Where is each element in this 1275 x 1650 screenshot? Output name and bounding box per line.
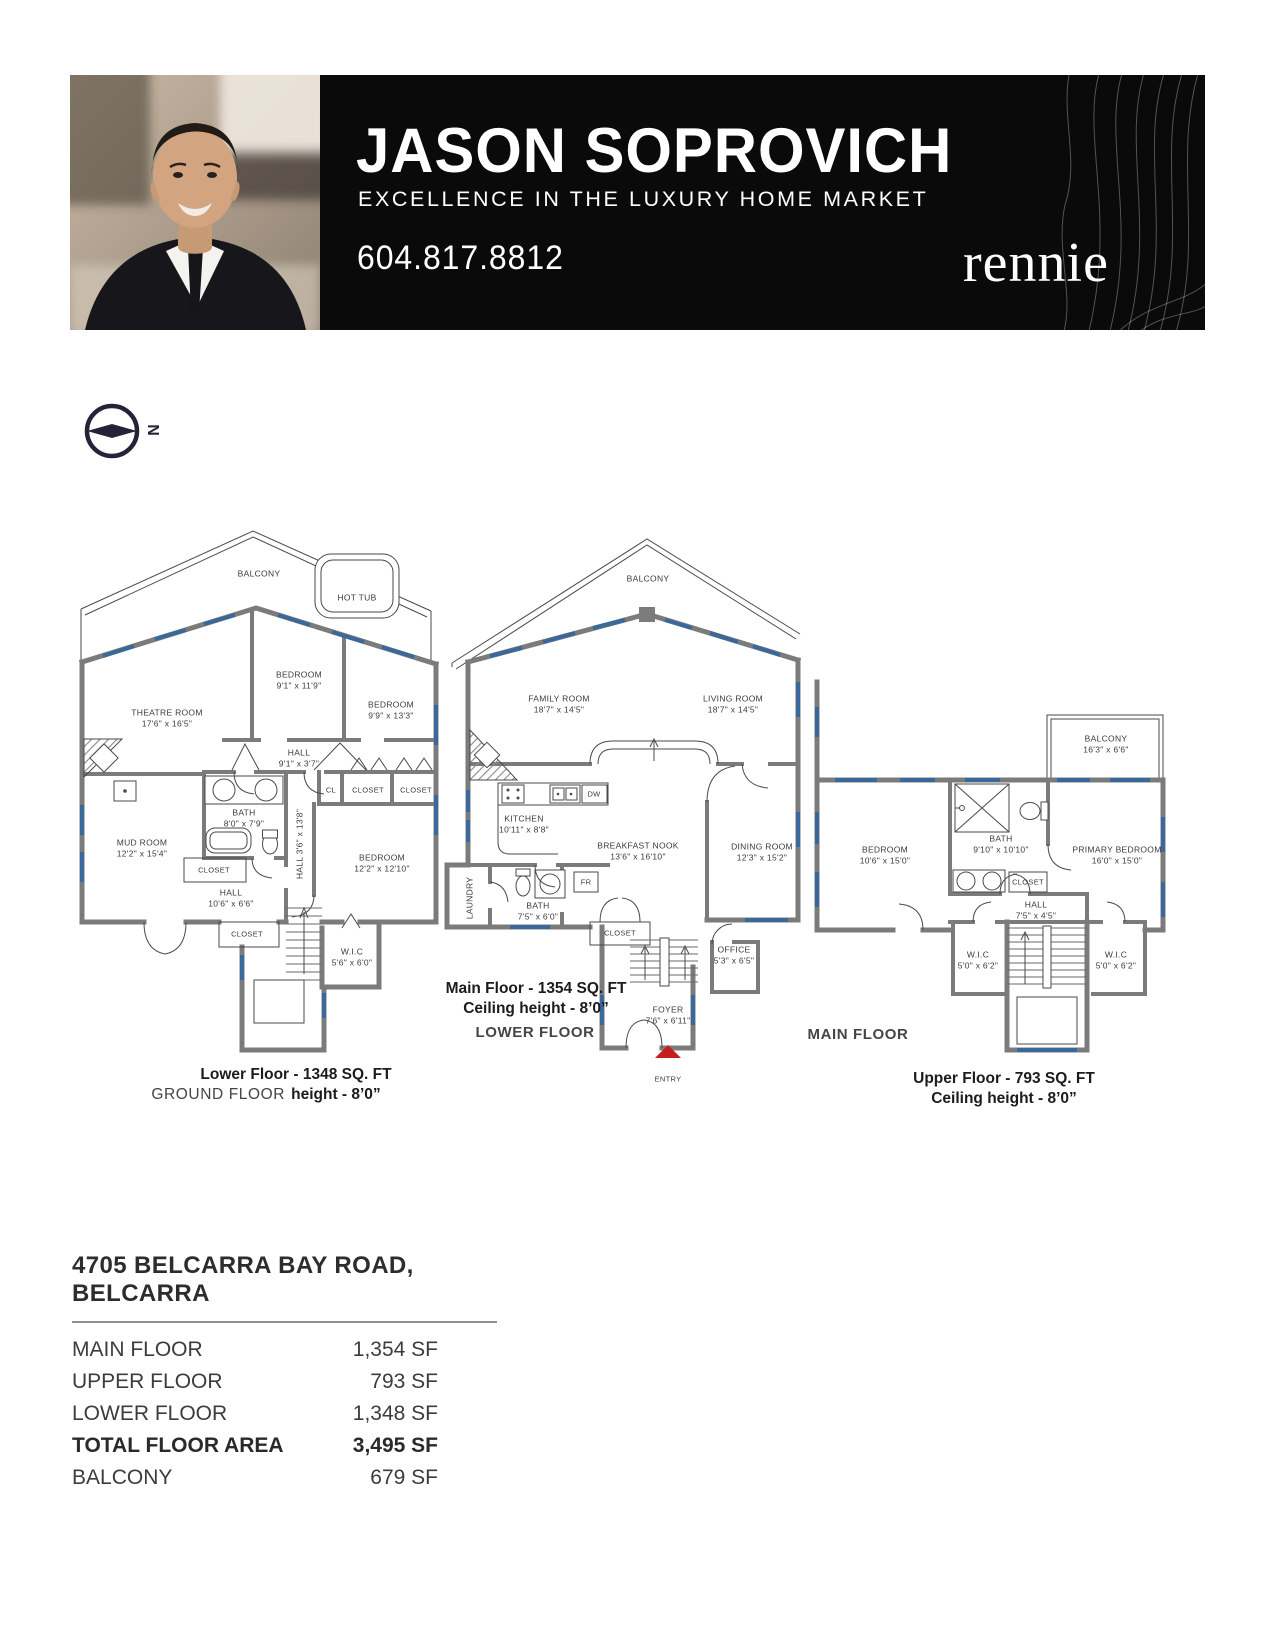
room-label-closet: CLOSET xyxy=(1012,877,1044,886)
main-floor-caption-title: Main Floor - 1354 SQ. FT xyxy=(446,980,627,998)
room-label-office: OFFICE5'3" x 6'5" xyxy=(714,944,754,965)
compass-needle xyxy=(87,424,137,438)
upper-floor-caption-title: Upper Floor - 793 SQ. FT xyxy=(913,1070,1095,1088)
room-label-living: LIVING ROOM18'7" x 14'5" xyxy=(703,693,763,714)
room-label-bedroom: BEDROOM12'2" x 12'10" xyxy=(354,852,410,873)
contour-lines-decoration xyxy=(865,75,1205,330)
room-label-closet: CLOSET xyxy=(352,785,384,794)
upper-floor-plan: BALCONY16'3" x 6'6" BEDROOM10'6" x 15'0"… xyxy=(805,672,1167,1072)
room-label-hall-vertical: HALL 3'6" x 13'8" xyxy=(295,809,306,879)
room-label-closet: CLOSET xyxy=(231,929,263,938)
balcony-outline xyxy=(81,531,431,662)
page: JASON SOPROVICH EXCELLENCE IN THE LUXURY… xyxy=(0,0,1275,1650)
room-label-dining: DINING ROOM12'3" x 15'2" xyxy=(731,841,793,862)
room-label-bath: BATH7'5" x 6'0" xyxy=(518,900,558,921)
room-label-hall: HALL7'5" x 4'5" xyxy=(1016,899,1056,920)
toilet xyxy=(516,876,530,896)
lower-floor-drawing xyxy=(74,510,442,1062)
entry-label: ENTRY xyxy=(655,1074,682,1083)
room-label-laundry: LAUNDRY xyxy=(465,877,476,920)
room-label-kitchen: KITCHEN10'11" x 8'8" xyxy=(499,813,549,834)
room-label-closet: CLOSET xyxy=(198,865,230,874)
balcony-outline xyxy=(452,539,800,669)
table-row: MAIN FLOOR 1,354 SF xyxy=(72,1334,497,1366)
agent-tagline: EXCELLENCE IN THE LUXURY HOME MARKET xyxy=(358,187,928,212)
room-label-mud-room: MUD ROOM12'2" x 15'4" xyxy=(117,837,168,858)
upper-floor-drawing xyxy=(805,672,1167,1072)
room-label-wic: W.I.C5'0" x 6'2" xyxy=(1096,949,1136,970)
agent-name: JASON SOPROVICH xyxy=(356,115,952,187)
room-label-bath: BATH9'10" x 10'10" xyxy=(973,833,1029,854)
main-floor-label: MAIN FLOOR xyxy=(808,1026,909,1043)
property-address: 4705 BELCARRA BAY ROAD, BELCARRA xyxy=(72,1252,497,1308)
room-label-balcony: BALCONY16'3" x 6'6" xyxy=(1083,733,1129,754)
area-table: MAIN FLOOR 1,354 SF UPPER FLOOR 793 SF L… xyxy=(72,1334,497,1494)
room-label-bedroom: BEDROOM9'9" x 13'3" xyxy=(368,699,414,720)
stairs xyxy=(254,908,322,1023)
room-label-closet: CLOSET xyxy=(400,785,432,794)
fireplace xyxy=(84,739,122,777)
compass-icon xyxy=(82,402,146,462)
hot-tub xyxy=(315,554,399,618)
stairs xyxy=(1007,926,1087,1044)
divider xyxy=(72,1321,497,1323)
table-row: LOWER FLOOR 1,348 SF xyxy=(72,1398,497,1430)
room-label-closet: CLOSET xyxy=(604,928,636,937)
room-label-hall: HALL10'6" x 6'6" xyxy=(208,887,254,908)
lower-floor-plan: BALCONY HOT TUB BEDROOM9'1" x 11'9" THEA… xyxy=(74,510,442,1062)
upper-floor-caption-height: Ceiling height - 8’0” xyxy=(931,1090,1077,1108)
room-label-bedroom: BEDROOM9'1" x 11'9" xyxy=(276,669,322,690)
table-row: UPPER FLOOR 793 SF xyxy=(72,1366,497,1398)
arch-opening xyxy=(590,739,718,764)
lower-floor-caption-title: Lower Floor - 1348 SQ. FT xyxy=(200,1066,391,1084)
header-banner: JASON SOPROVICH EXCELLENCE IN THE LUXURY… xyxy=(70,75,1205,330)
room-label-primary-bedroom: PRIMARY BEDROOM16'0" x 15'0" xyxy=(1072,844,1161,865)
room-label-bath: BATH8'0" x 7'9" xyxy=(224,807,264,828)
room-label-hot-tub: HOT TUB xyxy=(337,593,376,604)
room-label-fr: FR xyxy=(581,877,592,886)
room-label-bedroom: BEDROOM10'6" x 15'0" xyxy=(860,844,911,865)
room-label-balcony: BALCONY xyxy=(627,574,670,585)
table-row-total: TOTAL FLOOR AREA 3,495 SF xyxy=(72,1430,497,1462)
table-row: BALCONY 679 SF xyxy=(72,1462,497,1494)
room-label-balcony: BALCONY xyxy=(238,569,281,580)
lower-floor-caption-height: GROUND FLOORheight - 8’0” xyxy=(151,1086,380,1104)
room-label-wic: W.I.C5'6" x 6'0" xyxy=(332,946,372,967)
area-summary: 4705 BELCARRA BAY ROAD, BELCARRA MAIN FL… xyxy=(72,1252,497,1494)
room-label-hall: HALL9'1" x 3'7" xyxy=(279,747,319,768)
toilet xyxy=(1020,803,1040,820)
agent-photo xyxy=(70,75,320,330)
room-label-cl: CL xyxy=(326,785,336,794)
room-label-foyer: FOYER7'6" x 6'11" xyxy=(646,1004,691,1025)
fireplace xyxy=(470,730,517,780)
north-label: N xyxy=(143,424,161,436)
main-floor-caption-height: Ceiling height - 8’0” xyxy=(463,1000,609,1018)
room-label-nook: BREAKFAST NOOK13'6" x 16'10" xyxy=(597,840,679,861)
room-label-family: FAMILY ROOM18'7" x 14'5" xyxy=(528,693,590,714)
ground-floor-label: GROUND FLOOR xyxy=(151,1086,285,1103)
room-label-theatre: THEATRE ROOM17'6" x 16'5" xyxy=(131,707,202,728)
agent-phone: 604.817.8812 xyxy=(357,239,564,278)
room-label-dw: DW xyxy=(587,789,600,798)
room-label-wic: W.I.C5'0" x 6'2" xyxy=(958,949,998,970)
lower-floor-label: LOWER FLOOR xyxy=(475,1024,594,1041)
